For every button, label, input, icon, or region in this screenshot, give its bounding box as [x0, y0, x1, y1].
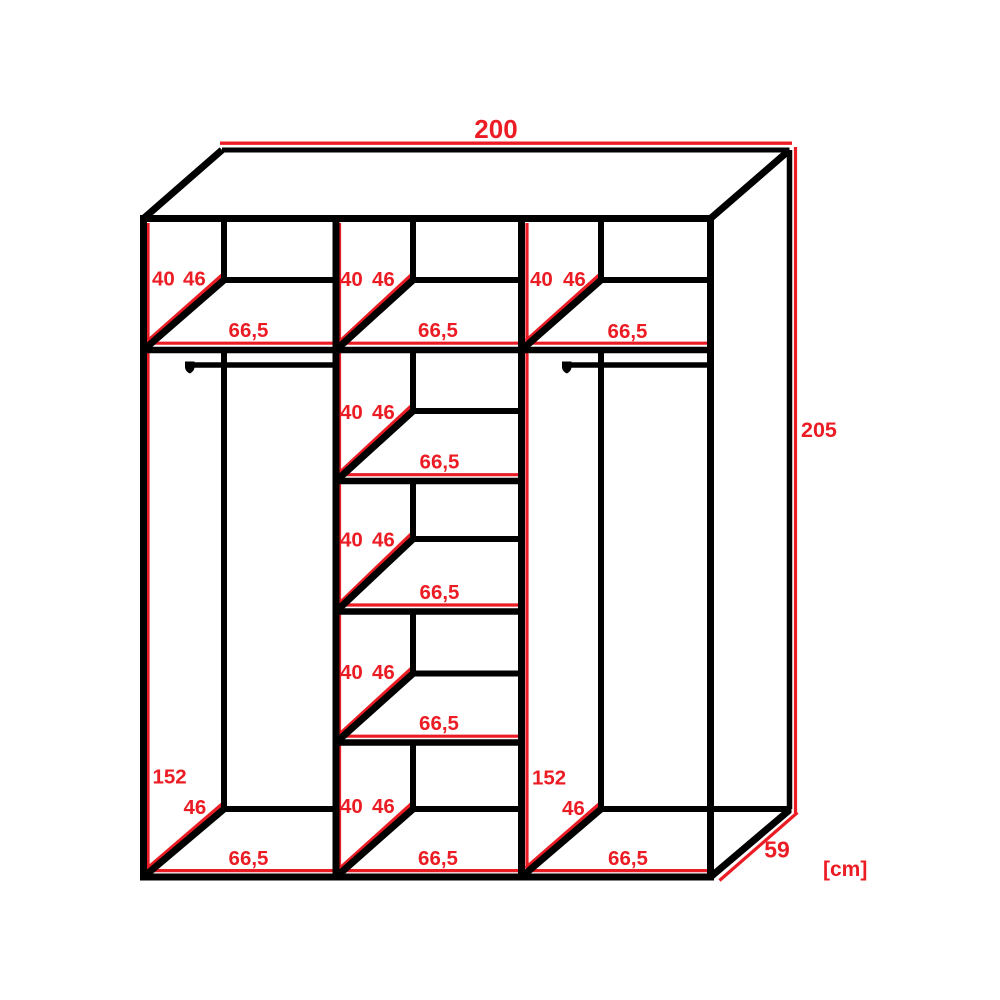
svg-text:152: 152: [532, 767, 566, 790]
svg-text:46: 46: [562, 797, 585, 820]
svg-text:66,5: 66,5: [418, 847, 458, 870]
svg-text:46: 46: [372, 795, 395, 818]
svg-text:46: 46: [372, 661, 395, 684]
svg-text:40: 40: [340, 268, 363, 291]
svg-text:66,5: 66,5: [418, 319, 458, 342]
svg-text:40: 40: [340, 661, 363, 684]
svg-text:66,5: 66,5: [229, 319, 269, 342]
svg-text:40: 40: [340, 401, 363, 424]
svg-text:66,5: 66,5: [229, 847, 269, 870]
svg-text:205: 205: [801, 418, 837, 442]
svg-text:66,5: 66,5: [608, 320, 648, 343]
svg-text:[cm]: [cm]: [823, 858, 867, 881]
svg-text:40: 40: [152, 268, 175, 291]
svg-text:59: 59: [764, 837, 790, 863]
svg-text:66,5: 66,5: [420, 451, 460, 474]
svg-text:40: 40: [340, 529, 363, 552]
svg-text:40: 40: [340, 795, 363, 818]
svg-text:46: 46: [372, 529, 395, 552]
svg-text:66,5: 66,5: [608, 847, 648, 870]
svg-text:66,5: 66,5: [420, 581, 460, 604]
svg-text:46: 46: [563, 268, 586, 291]
svg-text:46: 46: [183, 268, 206, 291]
svg-text:46: 46: [372, 401, 395, 424]
svg-text:200: 200: [474, 114, 517, 144]
svg-text:46: 46: [372, 268, 395, 291]
svg-text:152: 152: [153, 766, 187, 789]
svg-text:66,5: 66,5: [419, 712, 459, 735]
svg-text:40: 40: [530, 268, 553, 291]
svg-text:46: 46: [184, 796, 207, 819]
